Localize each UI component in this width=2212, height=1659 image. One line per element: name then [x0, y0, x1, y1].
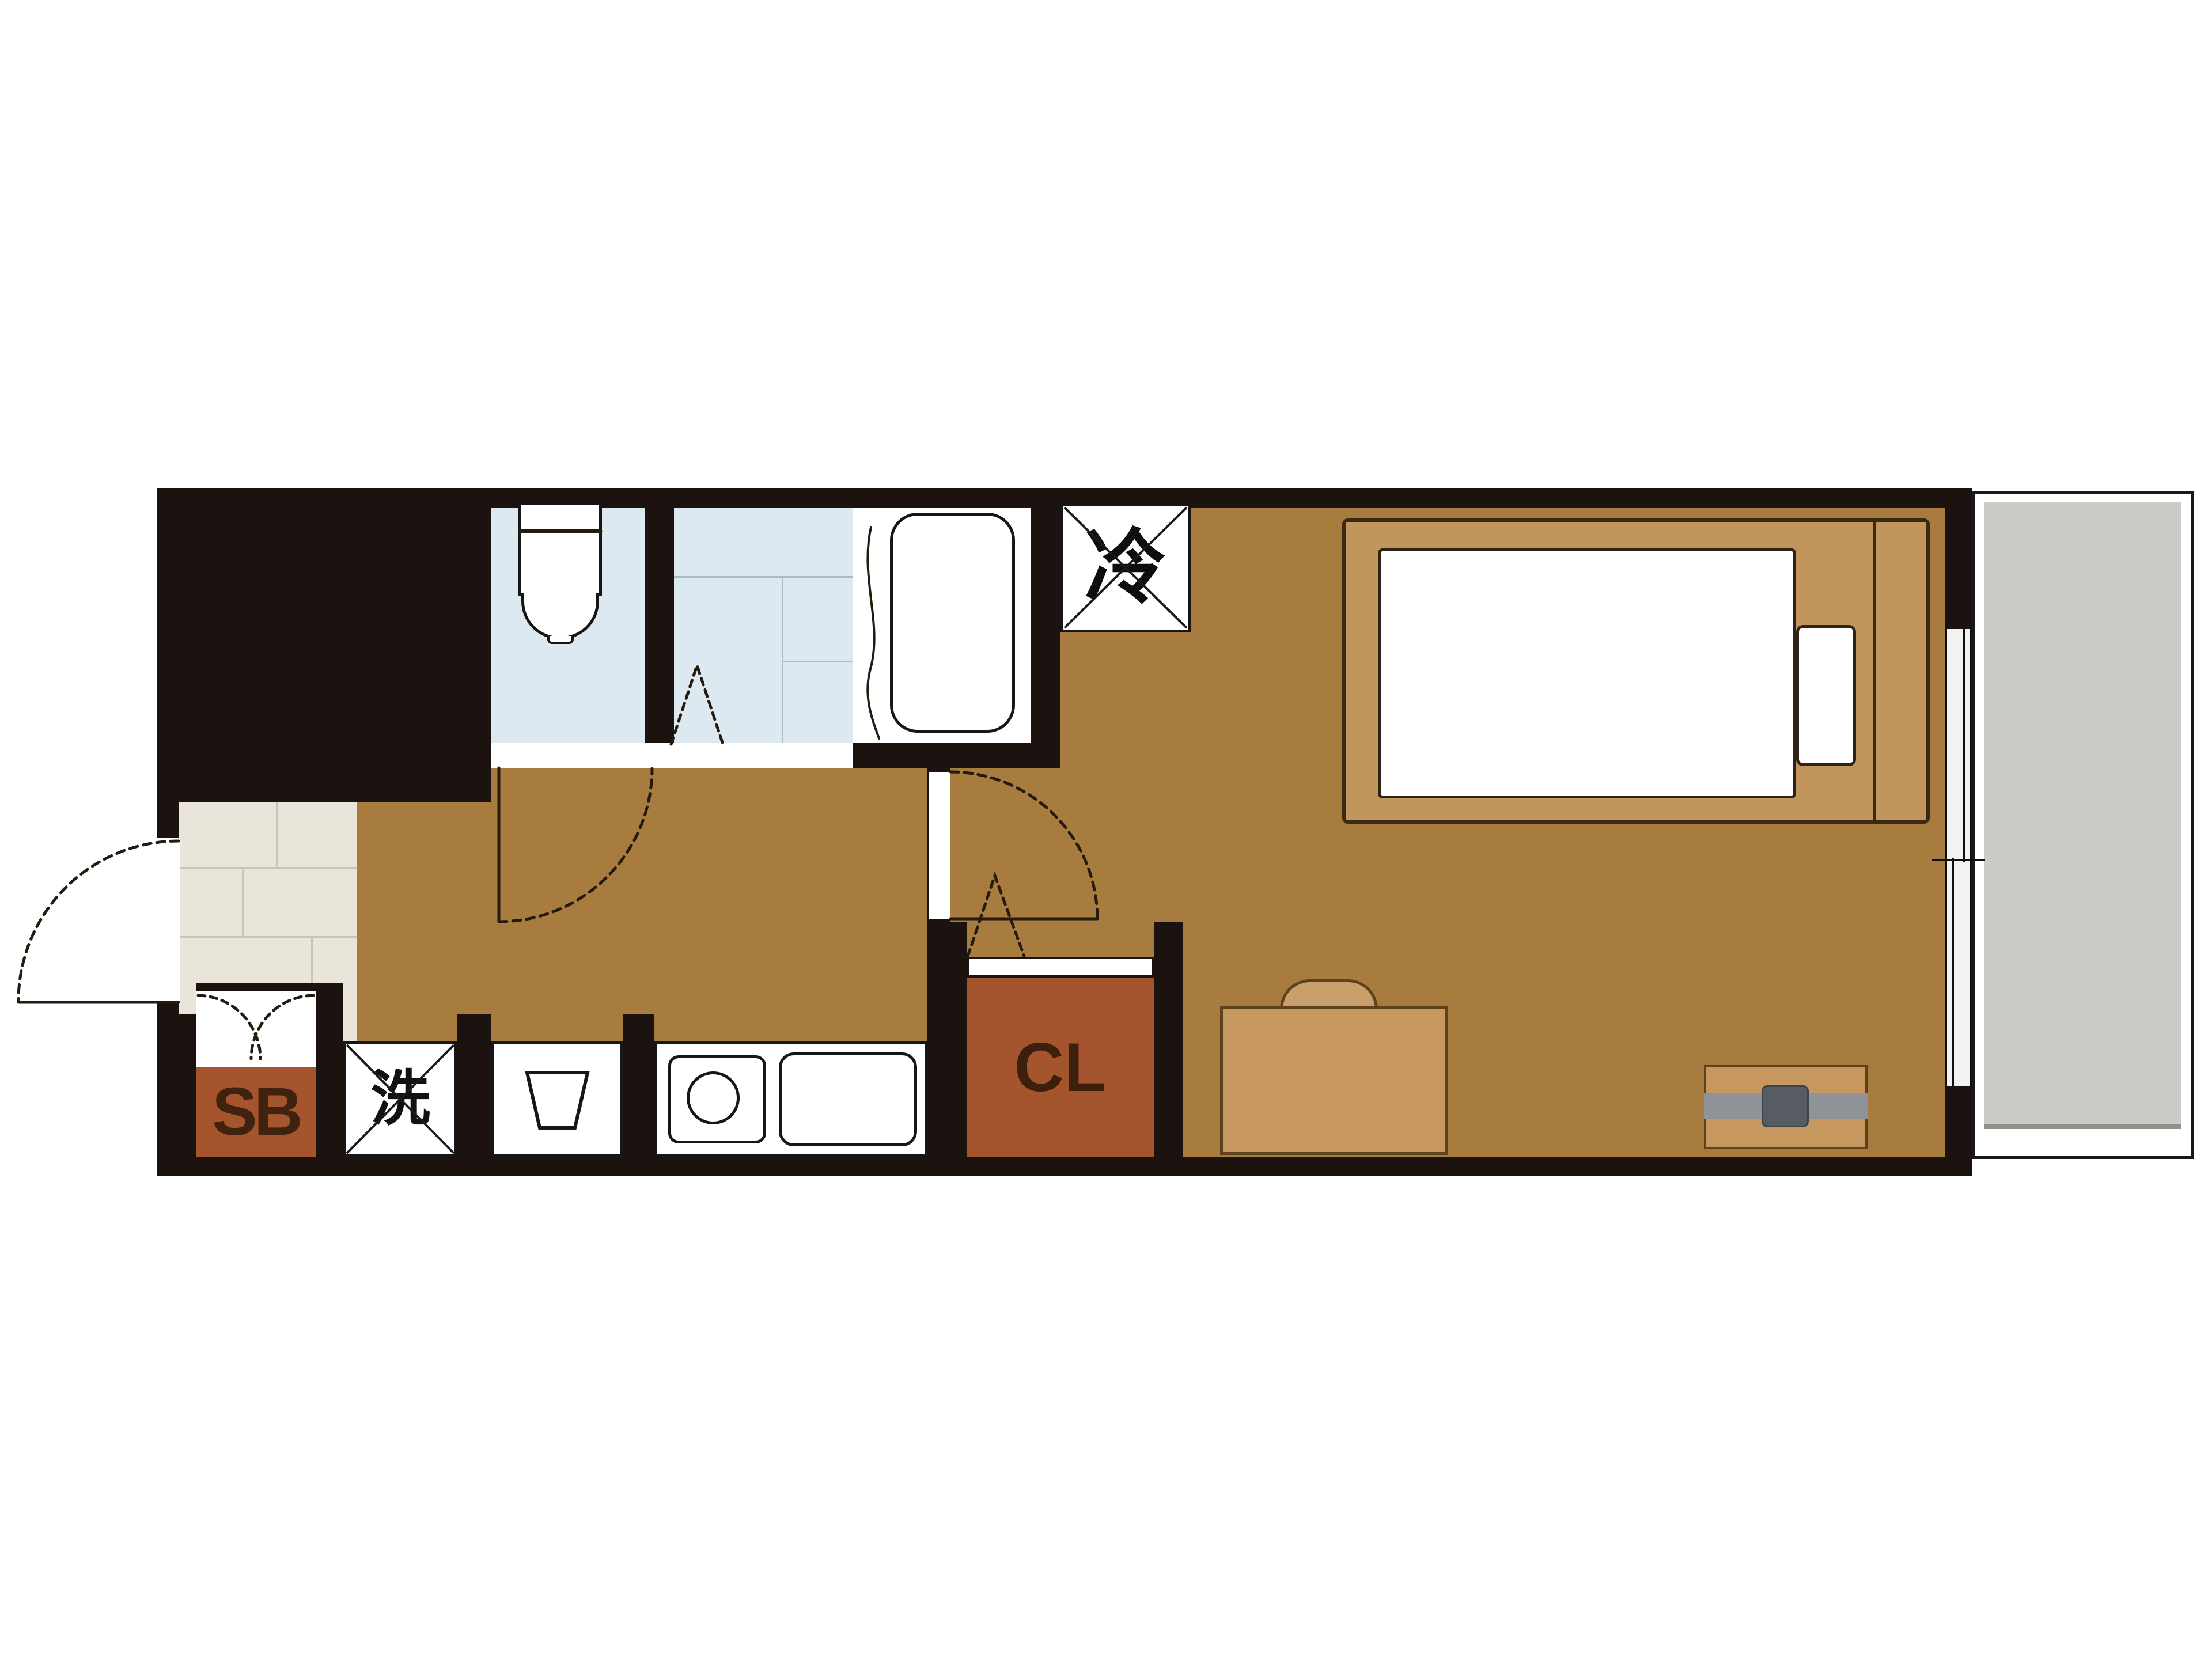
entry-door-arc — [18, 841, 179, 1001]
room-door-arc — [950, 772, 1097, 919]
floorplan-canvas: SB 洗 CL 冷 — [0, 0, 2212, 1659]
plan-linework — [0, 0, 2212, 1659]
bath-folding-door-icon — [671, 665, 723, 744]
washer-x-mark — [347, 1045, 454, 1153]
bathtub-wave-line — [868, 527, 879, 738]
window-frame-left — [1946, 629, 1971, 1086]
refrigerator-x-mark — [1065, 507, 1187, 628]
closet-folding-door-icon — [968, 876, 1024, 956]
toilet-door-arc — [499, 768, 652, 922]
wash-basin-icon — [527, 1073, 588, 1128]
